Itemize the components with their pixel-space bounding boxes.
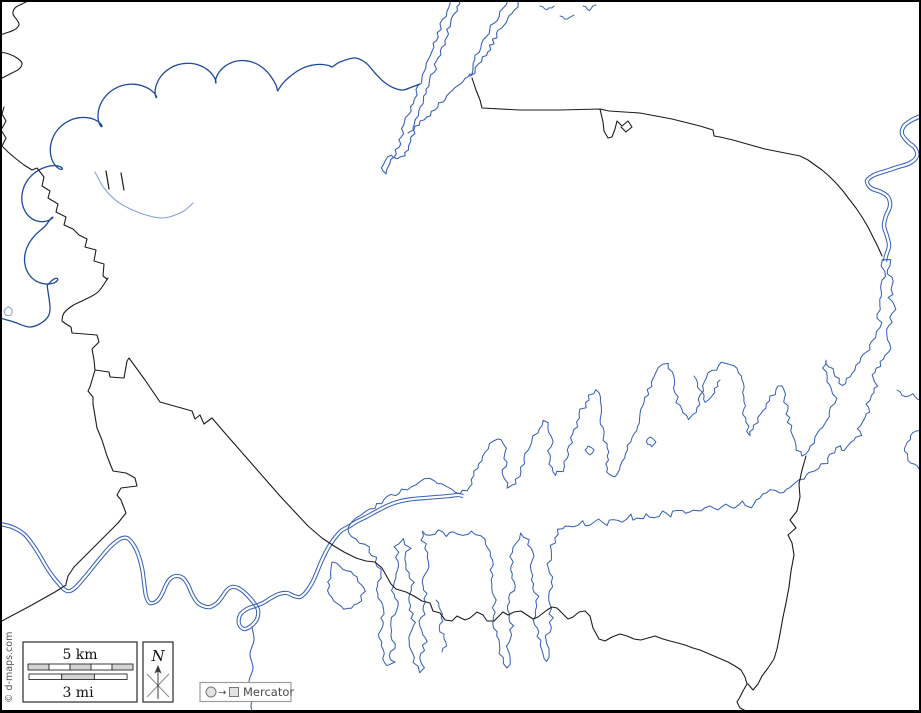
scale-km-segment bbox=[49, 664, 70, 670]
attribution: © d-maps.com bbox=[4, 632, 15, 703]
scale-mi-segment bbox=[29, 674, 62, 680]
scale-km-bar bbox=[28, 664, 133, 670]
north-label: N bbox=[150, 647, 165, 665]
projection-label: Mercator bbox=[243, 685, 294, 699]
map-frame bbox=[1, 1, 920, 712]
scale-mi-bar bbox=[29, 674, 127, 680]
water-features bbox=[0, 0, 921, 713]
scale-km-label: 5 km bbox=[62, 647, 97, 663]
boundary-lines bbox=[0, 0, 882, 713]
map-page: 5 km 3 mi N → Mercator © d-maps.com bbox=[0, 0, 921, 713]
projection-legend: → Mercator bbox=[200, 683, 294, 702]
scale-km-segment bbox=[28, 664, 49, 670]
projection-arrow-icon: → bbox=[218, 688, 226, 699]
scale-bar: 5 km 3 mi bbox=[23, 642, 137, 702]
map-canvas: 5 km 3 mi N → Mercator © d-maps.com bbox=[0, 0, 921, 713]
scale-km-segment bbox=[70, 664, 91, 670]
scale-mi-label: 3 mi bbox=[62, 685, 94, 701]
projected-square-icon bbox=[230, 688, 239, 697]
scale-mi-segment bbox=[62, 674, 95, 680]
scale-mi-segment bbox=[94, 674, 127, 680]
scale-km-segment bbox=[91, 664, 112, 670]
north-arrow: N bbox=[143, 642, 173, 702]
globe-circle-icon bbox=[206, 687, 216, 697]
scale-km-segment bbox=[112, 664, 133, 670]
